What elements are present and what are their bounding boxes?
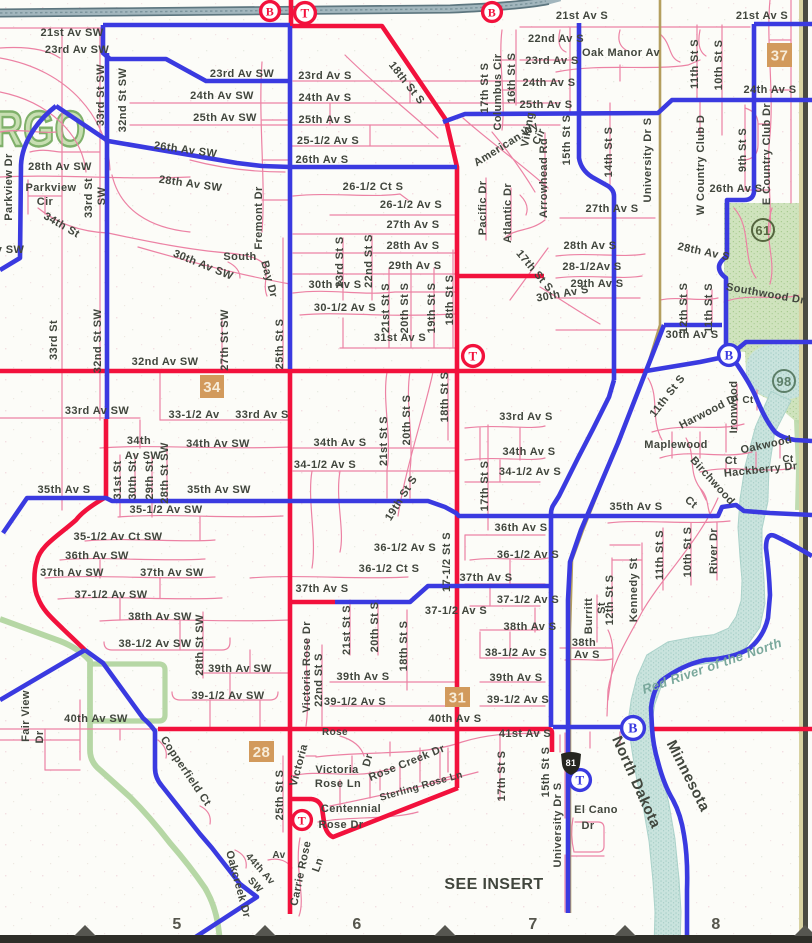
svg-text:25th St S: 25th St S <box>274 319 286 370</box>
svg-text:Cir: Cir <box>37 196 54 208</box>
svg-text:El Cano: El Cano <box>574 804 618 816</box>
svg-text:Av: Av <box>272 850 285 861</box>
svg-text:Av SW: Av SW <box>125 450 162 462</box>
svg-text:22nd St S: 22nd St S <box>313 653 325 707</box>
svg-text:39th Av SW: 39th Av SW <box>208 663 272 675</box>
svg-text:20th St S: 20th St S <box>399 283 411 334</box>
svg-text:15th St S: 15th St S <box>540 747 552 798</box>
svg-text:Dr: Dr <box>581 820 594 832</box>
svg-text:35-1/2 Av SW: 35-1/2 Av SW <box>129 504 202 516</box>
svg-text:38th: 38th <box>572 637 596 649</box>
svg-text:Pacific Dr: Pacific Dr <box>477 180 489 235</box>
svg-text:39th Av S: 39th Av S <box>337 671 390 683</box>
svg-text:36-1/2 Av S: 36-1/2 Av S <box>497 549 559 561</box>
svg-text:W Country Club D: W Country Club D <box>695 115 707 216</box>
svg-text:26th Av S: 26th Av S <box>296 154 349 166</box>
svg-text:B: B <box>266 5 274 19</box>
svg-text:Maplewood: Maplewood <box>644 439 708 451</box>
svg-text:33rd St: 33rd St <box>83 178 95 218</box>
svg-text:11th St S: 11th St S <box>654 530 666 580</box>
svg-text:33rd Av SW: 33rd Av SW <box>65 405 130 417</box>
svg-text:21st St S: 21st St S <box>378 416 390 466</box>
svg-text:98: 98 <box>776 374 791 389</box>
svg-text:22nd Av S: 22nd Av S <box>528 33 584 45</box>
svg-text:28th Av S: 28th Av S <box>387 240 440 252</box>
svg-text:17th St S: 17th St S <box>479 461 491 512</box>
svg-text:River Dr: River Dr <box>708 528 720 574</box>
svg-text:SEE INSERT: SEE INSERT <box>444 876 543 893</box>
svg-text:38th Av S: 38th Av S <box>504 621 557 633</box>
svg-text:17th St S: 17th St S <box>479 63 491 114</box>
svg-text:25-1/2 Av S: 25-1/2 Av S <box>297 135 359 147</box>
svg-text:B: B <box>488 6 496 20</box>
svg-text:34th Av S: 34th Av S <box>314 437 367 449</box>
svg-text:39th Av S: 39th Av S <box>490 672 543 684</box>
svg-text:26th Av S: 26th Av S <box>710 183 763 195</box>
svg-text:37-1/2 Av S: 37-1/2 Av S <box>425 605 487 617</box>
svg-text:T: T <box>468 349 477 364</box>
svg-text:38-1/2 Av S: 38-1/2 Av S <box>485 647 547 659</box>
svg-text:38th Av SW: 38th Av SW <box>128 611 192 623</box>
svg-text:6: 6 <box>352 916 361 933</box>
svg-text:SW: SW <box>96 187 108 206</box>
svg-text:14th St S: 14th St S <box>603 127 615 178</box>
svg-text:37th Av S: 37th Av S <box>296 583 349 595</box>
svg-text:36-1/2 Av S: 36-1/2 Av S <box>374 542 436 554</box>
svg-text:11th St S: 11th St S <box>689 39 701 89</box>
svg-text:25th Av S: 25th Av S <box>520 99 573 111</box>
svg-text:21st St S: 21st St S <box>380 283 392 333</box>
svg-text:28th Av S: 28th Av S <box>564 240 617 252</box>
svg-text:21st Av SW: 21st Av SW <box>40 27 103 39</box>
svg-text:Victoria Rose Dr: Victoria Rose Dr <box>301 621 313 713</box>
svg-text:23rd St S: 23rd St S <box>334 236 346 287</box>
svg-text:18th St S: 18th St S <box>398 621 410 672</box>
svg-text:35th Av S: 35th Av S <box>610 501 663 513</box>
svg-text:27th Av S: 27th Av S <box>387 219 440 231</box>
svg-text:36-1/2 Ct S: 36-1/2 Ct S <box>359 563 420 575</box>
svg-text:33rd Av S: 33rd Av S <box>499 411 553 423</box>
svg-text:University Dr S: University Dr S <box>552 783 564 868</box>
svg-text:Av S: Av S <box>574 649 600 661</box>
svg-text:27th St SW: 27th St SW <box>219 309 231 371</box>
svg-text:23rd Av S: 23rd Av S <box>298 70 352 82</box>
svg-text:35-1/2 Av Ct SW: 35-1/2 Av Ct SW <box>74 531 163 543</box>
svg-text:34th Av S: 34th Av S <box>503 446 556 458</box>
svg-text:15th St S: 15th St S <box>561 115 573 166</box>
svg-text:37: 37 <box>771 48 789 65</box>
svg-text:33-1/2 Av: 33-1/2 Av <box>168 409 220 421</box>
svg-text:E Country Club Dr: E Country Club Dr <box>761 103 773 205</box>
svg-text:9th St S: 9th St S <box>737 128 749 172</box>
svg-text:10th St S: 10th St S <box>682 527 694 578</box>
svg-text:Atlantic Dr: Atlantic Dr <box>502 183 514 243</box>
svg-text:22nd St S: 22nd St S <box>363 234 375 288</box>
svg-text:12th St S: 12th St S <box>604 575 616 626</box>
svg-text:28th St SW: 28th St SW <box>159 442 171 504</box>
svg-text:34: 34 <box>203 379 221 396</box>
svg-text:37-1/2 Av S: 37-1/2 Av S <box>497 594 559 606</box>
svg-text:Burritt: Burritt <box>583 598 595 634</box>
svg-text:Oak Manor Av: Oak Manor Av <box>582 47 660 59</box>
svg-text:32nd Av SW: 32nd Av SW <box>132 356 199 368</box>
svg-text:36th Av S: 36th Av S <box>495 522 548 534</box>
svg-text:Parkview: Parkview <box>26 182 77 194</box>
svg-text:32nd St SW: 32nd St SW <box>117 68 129 133</box>
svg-text:17th St S: 17th St S <box>496 751 508 802</box>
svg-text:Rose Dr: Rose Dr <box>319 819 364 831</box>
svg-text:7: 7 <box>528 916 537 933</box>
svg-text:24th Av S: 24th Av S <box>744 84 797 96</box>
svg-text:21st Av S: 21st Av S <box>736 10 788 22</box>
svg-text:33rd St: 33rd St <box>48 320 60 360</box>
svg-text:25th Av SW: 25th Av SW <box>193 112 257 124</box>
svg-text:Centennial: Centennial <box>321 803 381 815</box>
svg-text:32nd St SW: 32nd St SW <box>92 309 104 374</box>
svg-text:35th Av SW: 35th Av SW <box>187 484 251 496</box>
svg-text:Arrowhead Rd: Arrowhead Rd <box>538 138 550 218</box>
svg-text:30th St: 30th St <box>127 460 139 499</box>
svg-text:31: 31 <box>449 690 467 707</box>
svg-text:20th St S: 20th St S <box>369 602 381 653</box>
svg-text:Rose: Rose <box>322 727 348 738</box>
svg-text:34th Av SW: 34th Av SW <box>186 438 250 450</box>
svg-text:25th Av S: 25th Av S <box>299 114 352 126</box>
svg-text:Ct: Ct <box>782 454 794 465</box>
svg-text:19th St S: 19th St S <box>426 283 438 334</box>
svg-text:23rd Av SW: 23rd Av SW <box>45 44 110 56</box>
svg-text:Rose Ln: Rose Ln <box>315 778 361 790</box>
svg-text:30-1/2 Av S: 30-1/2 Av S <box>314 302 376 314</box>
svg-text:33rd Av S: 33rd Av S <box>235 409 289 421</box>
svg-text:T: T <box>575 773 584 788</box>
svg-text:Ct: Ct <box>742 395 754 406</box>
svg-text:21st Av S: 21st Av S <box>556 10 608 22</box>
svg-text:36th Av SW: 36th Av SW <box>65 550 129 562</box>
svg-text:12th St S: 12th St S <box>678 283 690 334</box>
svg-text:Fremont Dr: Fremont Dr <box>253 186 265 250</box>
svg-text:Victoria: Victoria <box>315 764 359 776</box>
svg-text:34th: 34th <box>127 435 151 447</box>
svg-text:21st St S: 21st St S <box>341 605 353 655</box>
svg-text:v SW: v SW <box>0 244 24 256</box>
svg-text:35th Av S: 35th Av S <box>38 484 91 496</box>
svg-text:16th St S: 16th St S <box>506 53 518 104</box>
svg-text:31st St: 31st St <box>112 461 124 500</box>
svg-text:29th Av S: 29th Av S <box>389 260 442 272</box>
svg-text:B: B <box>724 348 733 363</box>
svg-text:39-1/2 Av S: 39-1/2 Av S <box>324 696 386 708</box>
svg-text:37th Av SW: 37th Av SW <box>40 567 104 579</box>
svg-text:39-1/2 Av S: 39-1/2 Av S <box>487 694 549 706</box>
svg-text:Columbus Cir: Columbus Cir <box>492 53 504 130</box>
svg-text:26-1/2 Ct S: 26-1/2 Ct S <box>343 181 404 193</box>
svg-text:18th St S: 18th St S <box>439 372 451 423</box>
svg-text:8: 8 <box>711 916 720 933</box>
svg-text:Parkview Dr: Parkview Dr <box>3 153 15 221</box>
svg-text:B: B <box>628 722 638 737</box>
svg-text:28: 28 <box>253 744 271 761</box>
svg-text:24th Av S: 24th Av S <box>523 77 576 89</box>
svg-text:24th Av S: 24th Av S <box>299 92 352 104</box>
svg-text:Kennedy St: Kennedy St <box>628 558 640 623</box>
svg-text:23rd Av S: 23rd Av S <box>525 55 579 67</box>
svg-text:Ct: Ct <box>725 455 737 467</box>
svg-text:23rd Av SW: 23rd Av SW <box>210 68 275 80</box>
svg-text:South: South <box>223 251 256 263</box>
svg-text:Dr: Dr <box>34 730 46 743</box>
svg-text:81: 81 <box>566 758 577 768</box>
svg-text:38-1/2 Av SW: 38-1/2 Av SW <box>118 638 191 650</box>
svg-text:24th Av SW: 24th Av SW <box>190 90 254 102</box>
svg-text:26-1/2 Av S: 26-1/2 Av S <box>380 199 442 211</box>
svg-text:T: T <box>298 814 306 828</box>
svg-text:5: 5 <box>172 916 181 933</box>
svg-text:37th Av S: 37th Av S <box>460 572 513 584</box>
svg-text:Fair View: Fair View <box>20 690 32 742</box>
svg-text:11th St S: 11th St S <box>703 283 715 333</box>
svg-text:40th Av S: 40th Av S <box>429 713 482 725</box>
svg-text:28th St SW: 28th St SW <box>194 614 206 676</box>
svg-text:34-1/2 Av S: 34-1/2 Av S <box>294 459 356 471</box>
svg-text:27th Av S: 27th Av S <box>586 203 639 215</box>
svg-text:61: 61 <box>755 223 770 238</box>
svg-text:University Dr S: University Dr S <box>642 118 654 203</box>
svg-text:28th Av SW: 28th Av SW <box>28 161 92 173</box>
svg-text:41st Av S: 41st Av S <box>499 728 551 740</box>
svg-text:39-1/2 Av SW: 39-1/2 Av SW <box>191 690 264 702</box>
svg-text:T: T <box>300 6 309 21</box>
svg-text:10th St S: 10th St S <box>713 40 725 91</box>
svg-text:33rd St SW: 33rd St SW <box>95 64 107 126</box>
svg-text:37th Av SW: 37th Av SW <box>140 567 204 579</box>
svg-text:20th St S: 20th St S <box>401 395 413 446</box>
svg-text:29th St: 29th St <box>144 460 156 499</box>
svg-text:17-1/2 St S: 17-1/2 St S <box>441 532 453 592</box>
svg-text:28-1/2Av S: 28-1/2Av S <box>562 261 621 273</box>
svg-text:18th St S: 18th St S <box>444 275 456 326</box>
svg-text:25th St S: 25th St S <box>274 770 286 821</box>
svg-text:34-1/2 Av S: 34-1/2 Av S <box>499 466 561 478</box>
svg-text:37-1/2 Av SW: 37-1/2 Av SW <box>74 589 147 601</box>
svg-text:Ironwood: Ironwood <box>728 381 740 434</box>
svg-text:40th Av SW: 40th Av SW <box>64 713 128 725</box>
